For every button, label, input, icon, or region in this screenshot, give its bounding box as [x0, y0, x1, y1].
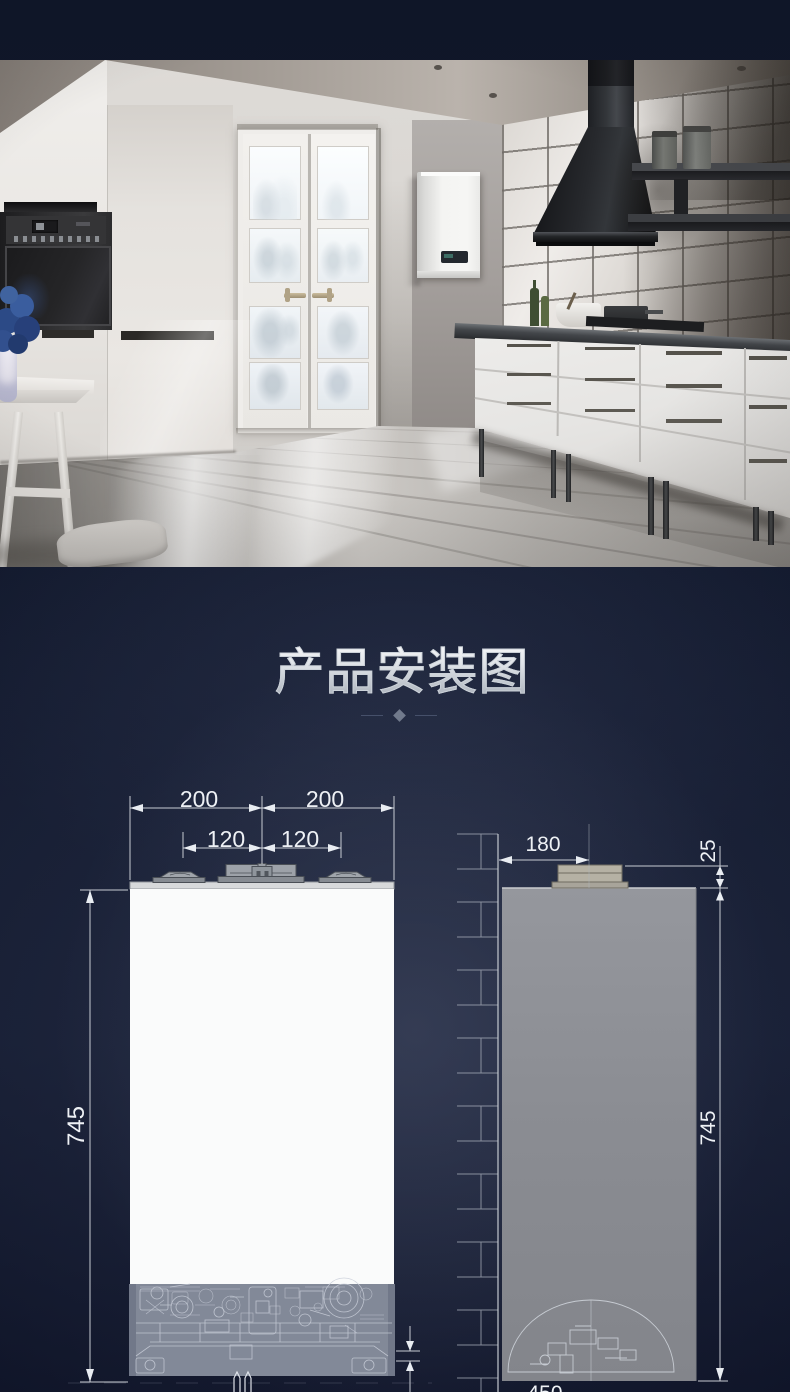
svg-text:200: 200	[306, 786, 344, 812]
svg-text:120: 120	[281, 826, 319, 852]
svg-text:745: 745	[697, 1110, 720, 1145]
svg-text:745: 745	[63, 1106, 90, 1146]
svg-text:120: 120	[207, 826, 245, 852]
svg-text:180: 180	[525, 833, 560, 856]
svg-text:450: 450	[527, 1382, 562, 1392]
svg-text:25: 25	[697, 839, 720, 862]
svg-text:200: 200	[180, 786, 218, 812]
